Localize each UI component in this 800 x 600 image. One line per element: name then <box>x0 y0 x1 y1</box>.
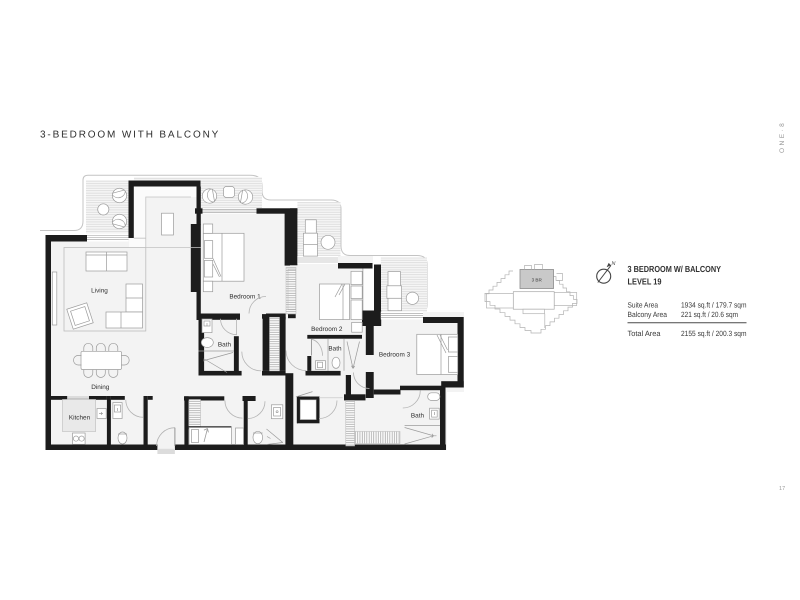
svg-text:3 BR: 3 BR <box>532 278 543 283</box>
svg-text:Bedroom 2: Bedroom 2 <box>311 326 343 333</box>
svg-text:3-BEDROOM WITH BALCONY: 3-BEDROOM WITH BALCONY <box>40 130 220 141</box>
svg-text:Kitchen: Kitchen <box>69 415 91 422</box>
svg-text:ONE·8: ONE·8 <box>779 121 786 153</box>
svg-text:Living: Living <box>91 287 108 294</box>
svg-text:Bath: Bath <box>218 342 232 349</box>
svg-text:17: 17 <box>779 486 785 492</box>
svg-text:Total Area: Total Area <box>628 329 662 338</box>
svg-text:Suite Area: Suite Area <box>628 301 659 310</box>
svg-text:N: N <box>612 261 616 267</box>
svg-text:2155 sq.ft / 200.3 sqm: 2155 sq.ft / 200.3 sqm <box>681 329 747 338</box>
svg-text:Bedroom 3: Bedroom 3 <box>379 352 411 359</box>
svg-text:221 sq.ft / 20.6 sqm: 221 sq.ft / 20.6 sqm <box>681 310 738 319</box>
svg-text:Bath: Bath <box>411 413 425 420</box>
svg-text:Bath: Bath <box>328 346 342 353</box>
svg-text:1934 sq.ft / 179.7 sqm: 1934 sq.ft / 179.7 sqm <box>681 301 747 310</box>
svg-text:Dining: Dining <box>91 384 110 391</box>
svg-text:LEVEL 19: LEVEL 19 <box>628 277 662 287</box>
svg-text:3 BEDROOM W/ BALCONY: 3 BEDROOM W/ BALCONY <box>628 264 722 274</box>
svg-text:Balcony Area: Balcony Area <box>628 310 668 319</box>
